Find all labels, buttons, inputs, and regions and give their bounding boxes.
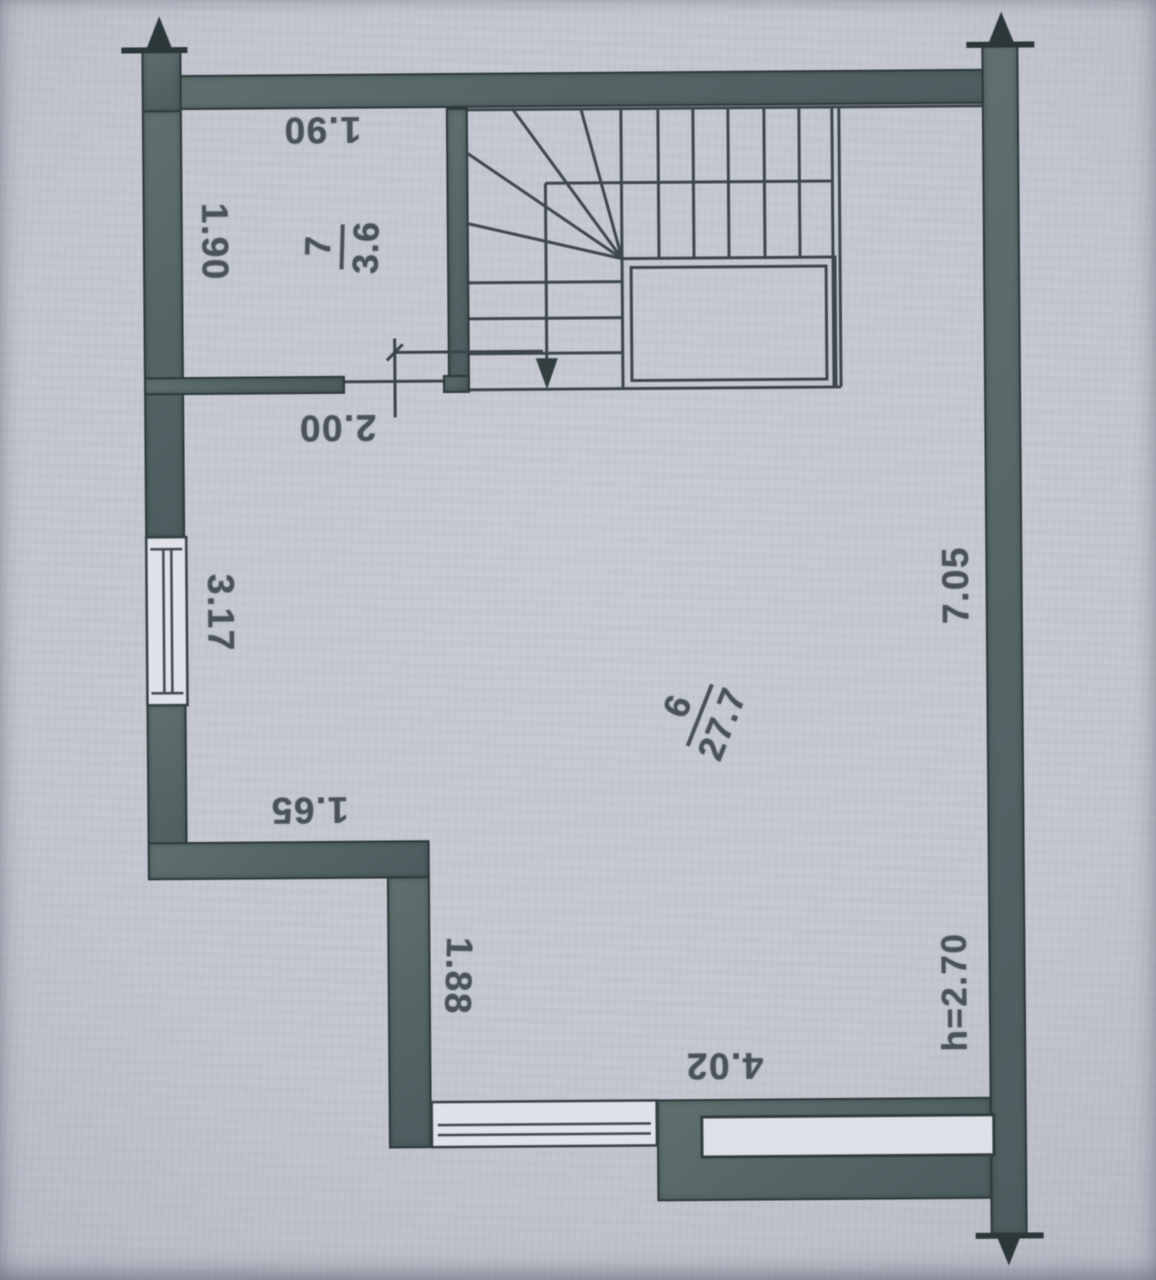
stair-direction-arrow-icon: [536, 358, 558, 389]
dim-bottom-window: 4.02: [685, 1047, 763, 1085]
dim-room7-left-height: 1.90: [196, 203, 234, 281]
stair-walk-line: [545, 181, 833, 358]
protrusion-opening: [702, 1115, 994, 1157]
stair-landing-inner: [631, 266, 827, 381]
dim-ledge-depth: 1.88: [439, 936, 478, 1015]
stair-landing-outer: [622, 257, 836, 389]
room7-area: 3.6: [347, 220, 384, 274]
dim-ledge-width: 1.65: [270, 791, 348, 829]
dim-room7-top-width: 1.90: [283, 111, 361, 149]
section-arrow-down-right-icon: [996, 1234, 1022, 1266]
dimension-line: [395, 351, 543, 352]
dim-hall-opening: 2.00: [298, 409, 376, 447]
room6-number: 6: [657, 690, 698, 722]
staircase: [468, 106, 984, 390]
stair-top-line: [468, 106, 982, 110]
section-arrow-up-left-icon: [146, 16, 172, 49]
room7-fraction-bar: [340, 224, 345, 269]
dim-left-window: 3.17: [202, 574, 240, 652]
window-bottom: [432, 1100, 657, 1147]
plan-layer: 1.90 1.90 7 3.6 2.00 3.17 1.65 1.88 6 27…: [0, 0, 1156, 1280]
dim-right-height: 7.05: [937, 546, 975, 624]
window-left: [146, 537, 187, 705]
dim-ceiling-height: h=2.70: [937, 932, 973, 1051]
room7-label: 7 3.6: [299, 219, 384, 274]
section-arrow-up-right-icon: [988, 12, 1014, 44]
plan-linework: [0, 0, 1156, 1280]
section-marks: [121, 9, 1044, 1272]
dimension-line-200: [387, 337, 544, 417]
room7-number: 7: [300, 236, 337, 257]
scanned-floor-plan: 1.90 1.90 7 3.6 2.00 3.17 1.65 1.88 6 27…: [0, 0, 1156, 1280]
